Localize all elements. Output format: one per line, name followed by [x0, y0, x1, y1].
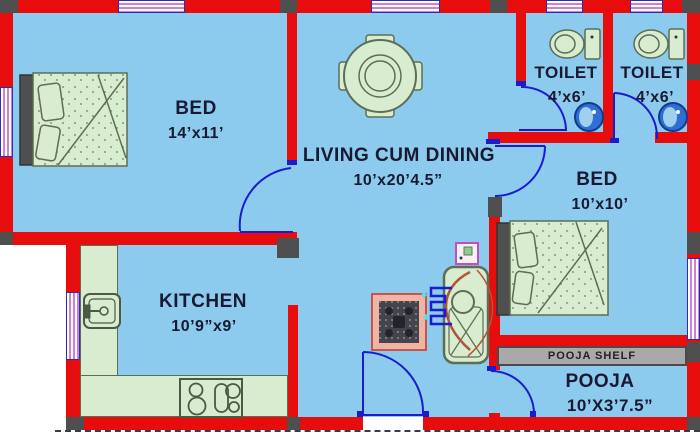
living-label: LIVING CUM DINING	[303, 145, 495, 167]
kitchen-dims: 10’9”x9’	[171, 318, 236, 336]
floor-plan: BED 14’x11’ LIVING CUM DINING 10’x20’4.5…	[0, 0, 700, 434]
pooja-label: POOJA	[565, 371, 634, 393]
wash-area	[421, 243, 493, 363]
bed1-door	[240, 160, 297, 232]
toilet1-label: TOILET	[534, 63, 597, 83]
double-bed-right	[497, 221, 608, 315]
dining-table-4-chairs	[339, 35, 422, 117]
bed1-label: BED	[175, 98, 217, 120]
wc-toilet-2	[634, 29, 684, 59]
wash-basin-toilet-1	[575, 103, 603, 131]
wc-toilet-1	[550, 29, 600, 59]
living-dims: 10’x20’4.5”	[353, 172, 442, 190]
plot-boundary-line	[55, 430, 700, 432]
kitchen-label: KITCHEN	[159, 291, 247, 313]
toilet1-dims: 4’x6’	[548, 89, 586, 107]
kitchen-sink	[84, 294, 120, 328]
pooja-shelf-label: POOJA SHELF	[548, 350, 636, 362]
rug	[372, 294, 426, 350]
stove-4-burner	[180, 379, 242, 417]
pooja-door	[487, 366, 536, 417]
double-bed-left	[20, 73, 127, 166]
toilet2-label: TOILET	[620, 63, 683, 83]
bed2-dims: 10’x10’	[572, 196, 629, 214]
wash-basin-toilet-2	[659, 103, 687, 131]
toilet2-dims: 4’x6’	[636, 89, 674, 107]
pooja-dims: 10’X3’7.5”	[567, 396, 653, 416]
bed1-dims: 14’x11’	[168, 125, 224, 143]
main-entrance-door	[357, 352, 429, 417]
bed2-label: BED	[576, 169, 618, 191]
